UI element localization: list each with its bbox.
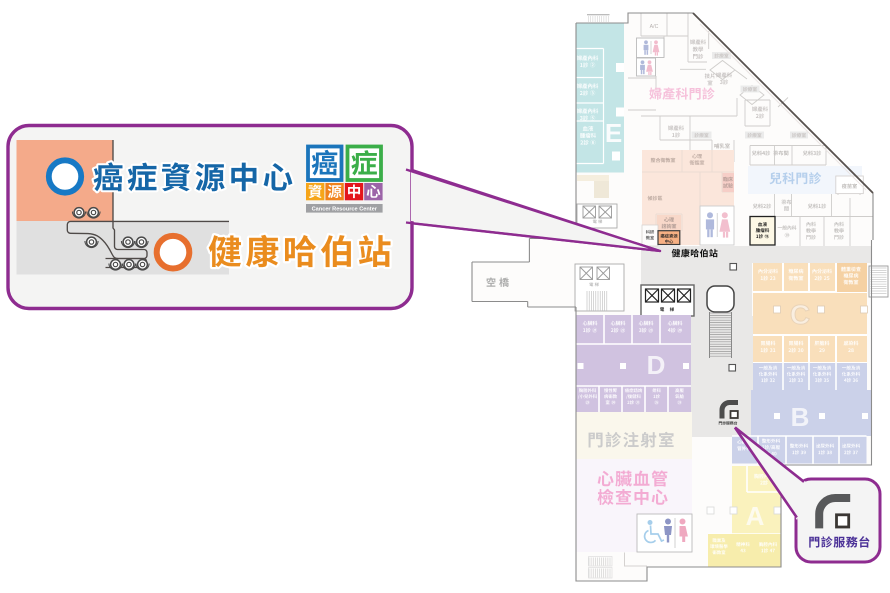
- svg-text:Cancer Resource Center: Cancer Resource Center: [312, 207, 378, 213]
- svg-text:A/C: A/C: [650, 24, 659, 30]
- svg-text:A: A: [746, 501, 765, 531]
- svg-text:E: E: [605, 118, 622, 148]
- svg-text:D: D: [647, 350, 666, 380]
- svg-text:B: B: [791, 402, 810, 432]
- svg-text:C: C: [790, 299, 810, 330]
